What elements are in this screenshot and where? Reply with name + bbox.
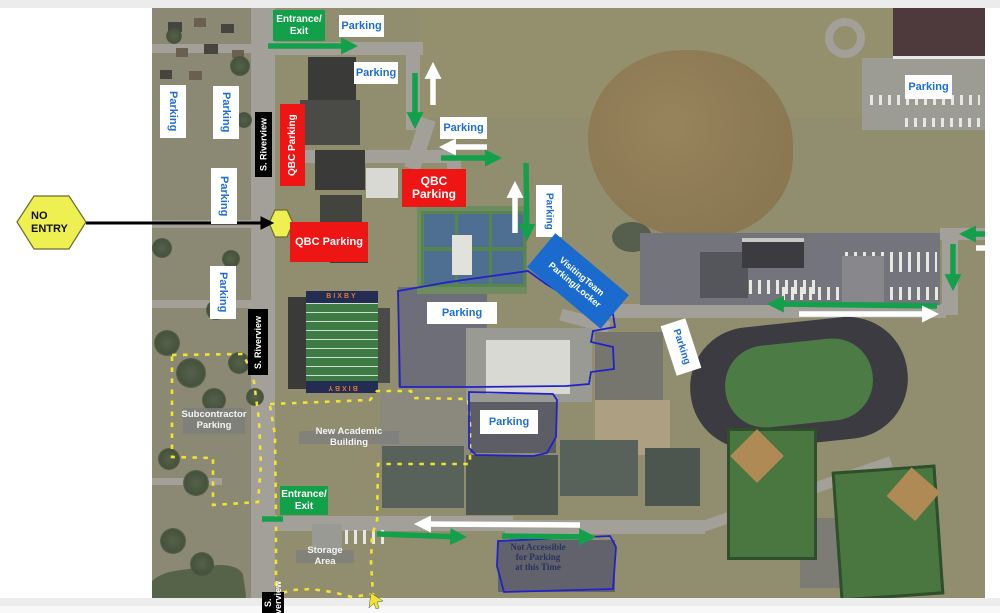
slide-top-strip bbox=[0, 0, 1000, 8]
bld bbox=[645, 448, 700, 506]
road bbox=[406, 50, 420, 130]
yardlines bbox=[306, 303, 378, 381]
bld bbox=[382, 446, 464, 508]
court bbox=[489, 211, 526, 250]
road bbox=[596, 304, 946, 318]
bld bbox=[288, 297, 306, 389]
tree bbox=[183, 470, 209, 496]
stadium-endzone-text: BIXBY bbox=[306, 291, 378, 303]
parking-map-slide: { "map": { "title": "Campus parking map … bbox=[0, 0, 1000, 613]
tree bbox=[190, 552, 214, 576]
house bbox=[194, 18, 206, 27]
stadium-endzone-text-2: BIXBY bbox=[306, 381, 378, 393]
house bbox=[189, 71, 202, 80]
road bbox=[942, 235, 958, 315]
bld bbox=[330, 228, 368, 263]
lot bbox=[498, 540, 615, 592]
slide-bottom-strip-2 bbox=[0, 606, 1000, 613]
tree bbox=[236, 112, 252, 128]
tree bbox=[166, 28, 182, 44]
bld bbox=[452, 235, 472, 275]
house bbox=[204, 44, 218, 54]
road bbox=[152, 220, 264, 228]
bld bbox=[486, 340, 570, 394]
road bbox=[263, 42, 423, 55]
tree bbox=[222, 250, 240, 268]
terrain-patch bbox=[825, 18, 865, 58]
tree bbox=[152, 238, 172, 258]
terrain-patch bbox=[887, 467, 941, 521]
slide-bottom-strip bbox=[0, 598, 1000, 606]
bld bbox=[300, 100, 360, 145]
tree bbox=[228, 352, 250, 374]
trailer-row bbox=[905, 118, 980, 127]
house bbox=[160, 70, 172, 79]
terrain-patch: BIXBY BIXBY bbox=[306, 291, 378, 393]
aerial-background: BIXBY BIXBY bbox=[152, 8, 985, 598]
tree bbox=[246, 388, 264, 406]
no-entry-hexagon bbox=[17, 196, 86, 249]
tree bbox=[206, 300, 226, 320]
bld bbox=[742, 238, 804, 268]
bld bbox=[466, 455, 558, 515]
bld bbox=[366, 168, 398, 198]
terrain-patch bbox=[832, 465, 945, 598]
aerial-map: BIXBY BIXBY bbox=[152, 8, 985, 598]
bld bbox=[560, 440, 638, 496]
court bbox=[489, 248, 526, 287]
bld bbox=[312, 524, 342, 554]
bld bbox=[700, 252, 748, 298]
trailer-row bbox=[345, 530, 385, 544]
tree bbox=[154, 330, 180, 356]
tree bbox=[230, 56, 250, 76]
no-entry-label: NO ENTRY bbox=[17, 196, 86, 249]
road bbox=[505, 520, 705, 534]
bld bbox=[378, 308, 390, 383]
tree bbox=[176, 358, 206, 388]
bld bbox=[893, 8, 985, 59]
tree bbox=[158, 448, 180, 470]
road bbox=[940, 228, 985, 240]
terrain-patch bbox=[721, 334, 877, 431]
trailer-row bbox=[870, 95, 980, 105]
tree bbox=[160, 528, 186, 554]
house bbox=[225, 88, 237, 97]
bld bbox=[842, 256, 884, 302]
terrain-patch bbox=[727, 428, 817, 560]
bld bbox=[315, 150, 365, 190]
house bbox=[176, 48, 188, 57]
terrain-patch bbox=[730, 429, 784, 483]
road bbox=[263, 516, 513, 531]
bld bbox=[308, 57, 356, 105]
house bbox=[221, 24, 234, 33]
tree bbox=[202, 388, 226, 412]
